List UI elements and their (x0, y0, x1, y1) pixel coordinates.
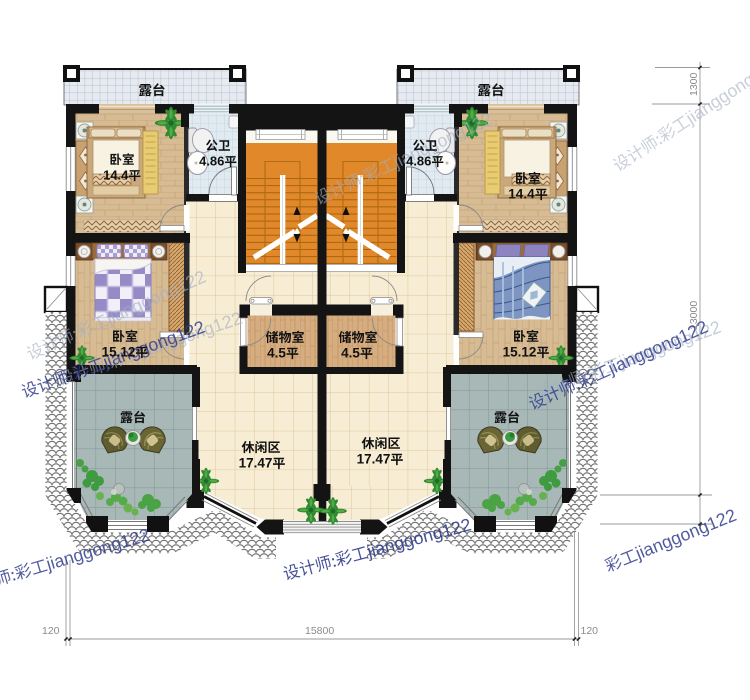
svg-text:15.12: 15.12 (503, 345, 537, 360)
svg-text:1300: 1300 (688, 72, 700, 96)
svg-text:17.47: 17.47 (239, 456, 273, 471)
svg-text:4.5: 4.5 (341, 346, 360, 361)
svg-text:4.86: 4.86 (199, 154, 224, 169)
svg-text:15.12: 15.12 (102, 345, 136, 360)
svg-text:14.4: 14.4 (103, 168, 129, 183)
svg-text:120: 120 (42, 625, 60, 637)
svg-text:120: 120 (581, 625, 599, 637)
svg-text:4.86: 4.86 (406, 154, 431, 169)
svg-text:14.4: 14.4 (508, 187, 535, 202)
svg-text:4.5: 4.5 (267, 346, 286, 361)
svg-text:17.47: 17.47 (357, 452, 391, 467)
svg-text:15800: 15800 (305, 625, 334, 637)
